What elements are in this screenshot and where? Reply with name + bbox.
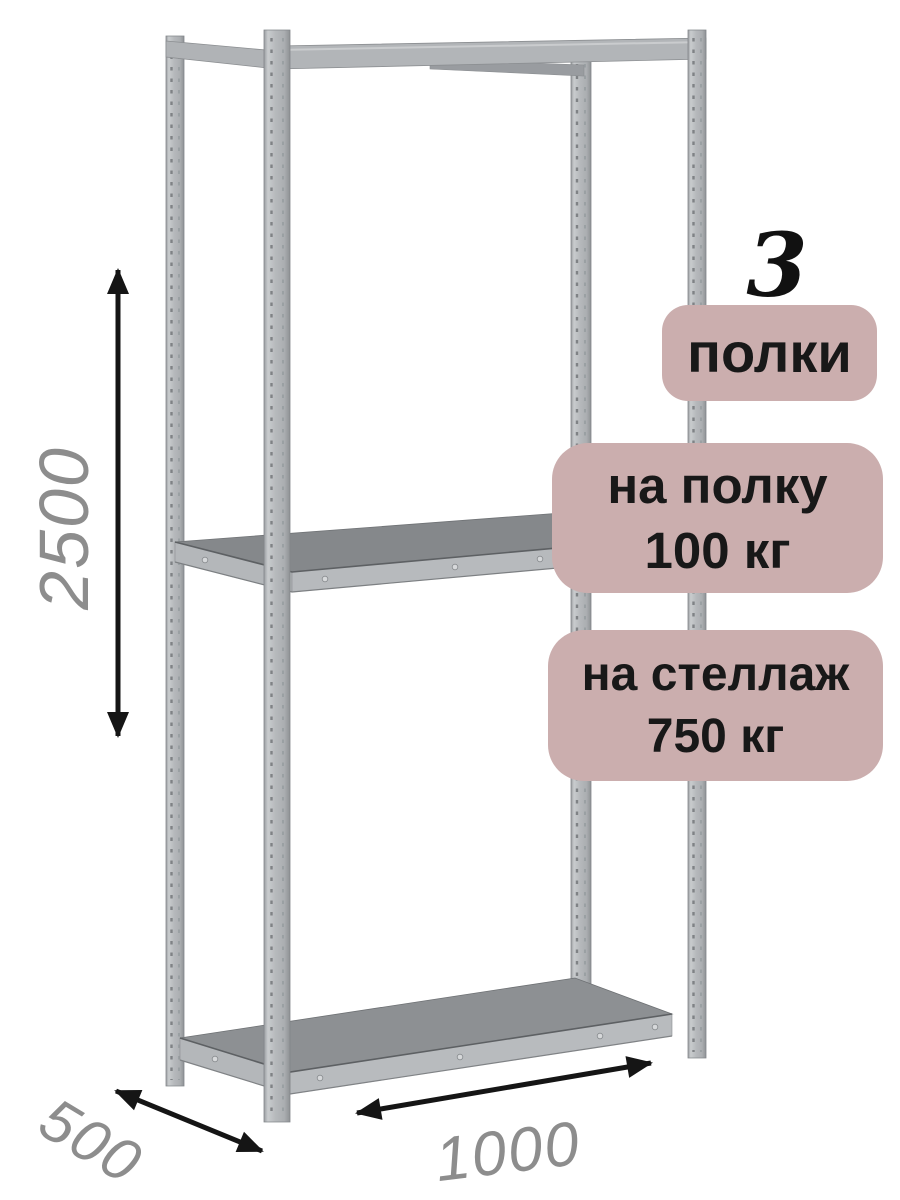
rack-load-badge: на стеллаж 750 кг [548,630,883,781]
rack-load-line1: на стеллаж [582,644,850,705]
shelf-count-number: 3 [746,213,807,317]
bottom-shelf [180,978,672,1094]
rack-load-line2: 750 кг [647,706,784,767]
shelf-count-badge: полки [662,305,877,401]
shelf-count-label: полки [687,317,852,389]
product-image: 2500 500 1000 3 полки на полку 100 кг на… [0,0,900,1200]
shelving-rack-illustration [0,0,900,1200]
height-dimension-label: 2500 [24,446,104,610]
top-frame [166,38,706,76]
front-left-post [264,30,290,1122]
shelf-load-badge: на полку 100 кг [552,443,883,593]
shelf-load-line2: 100 кг [644,518,790,583]
shelf-load-line1: на полку [607,453,827,518]
